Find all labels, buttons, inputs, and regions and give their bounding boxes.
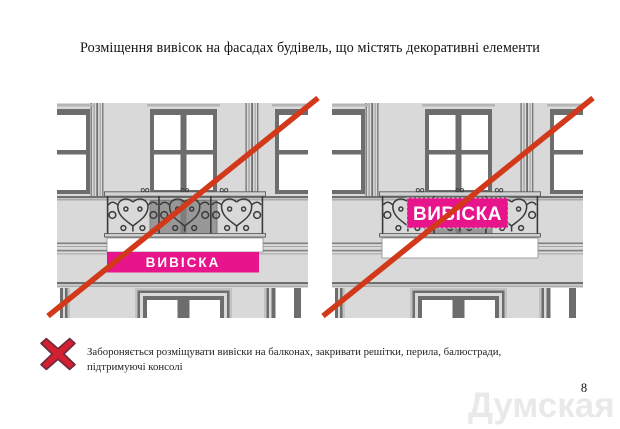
sign-plate-on-balcony: ВИВІСКА: [407, 198, 508, 228]
slide: Розміщення вивісок на фасадах будівель, …: [0, 0, 620, 429]
prohibition-note-line-1: Забороняється розміщувати вивіски на бал…: [87, 345, 501, 360]
building-illustration-right: ВИВІСКА: [332, 103, 583, 318]
figure-sign-on-balcony: ВИВІСКА: [332, 103, 583, 318]
figure-sign-below-balcony: ВИВІСКА: [57, 103, 308, 318]
sign-plate-below-balcony: ВИВІСКА: [107, 252, 259, 273]
prohibition-note: Забороняється розміщувати вивіски на бал…: [87, 345, 501, 375]
page-number: 8: [574, 381, 594, 396]
x-mark-icon: [40, 337, 76, 371]
sign-label: ВИВІСКА: [146, 255, 221, 270]
page-title: Розміщення вивісок на фасадах будівель, …: [0, 40, 620, 57]
building-illustration-left: ВИВІСКА: [57, 103, 308, 318]
prohibition-note-line-2: підтримуючі консолі: [87, 360, 501, 375]
